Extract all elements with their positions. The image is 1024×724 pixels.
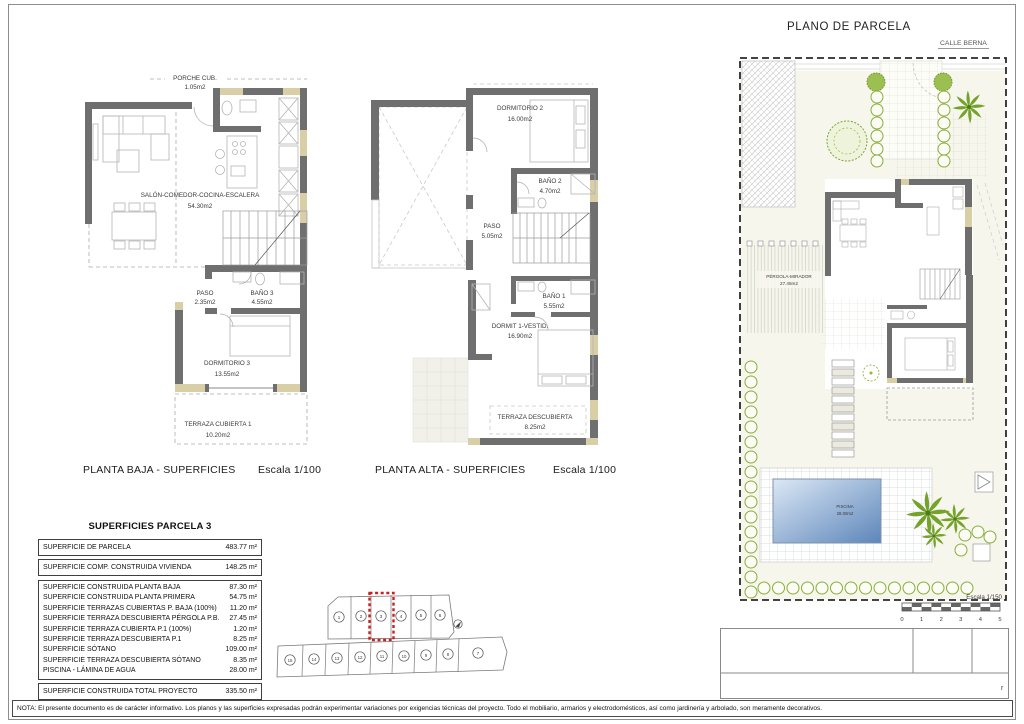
row-value: 28.00 m² — [223, 666, 257, 676]
pa-furniture — [472, 100, 595, 386]
plot-number: 12 — [358, 655, 363, 660]
planta-baja-plan: PORCHE CUB. 1.05m2 SALÓN-COMEDOR-COCINA-… — [55, 58, 350, 458]
room-label-porche: PORCHE CUB. — [173, 75, 217, 82]
scale-bar-cells — [902, 603, 1000, 611]
table-row: SUPERFICIE CONSTRUIDA PLANTA BAJA87.30 m… — [43, 583, 257, 593]
table-row: SUPERFICIE TERRAZA DESCUBIERTA P.18.25 m… — [43, 635, 257, 645]
pergola-area: 27.45m2 — [780, 281, 798, 286]
plot-number: 13 — [335, 656, 340, 661]
table-row: SUPERFICIE SÓTANO109.00 m² — [43, 645, 257, 655]
table-row: SUPERFICIE CONSTRUIDA PLANTA PRIMERA54.7… — [43, 593, 257, 603]
table-row: SUPERFICIE TERRAZAS CUBIERTAS P. BAJA (1… — [43, 604, 257, 614]
scale-tick-1: 1 — [920, 617, 923, 623]
room-area-terraza-desc: 8.25m2 — [524, 424, 546, 431]
row-label: PISCINA - LÁMINA DE AGUA — [43, 666, 136, 676]
scale-planta-alta: Escala 1/100 — [553, 464, 616, 476]
scale-tick-0: 0 — [900, 617, 903, 623]
hatch-fill — [742, 61, 795, 207]
row-value: 148.25 m² — [219, 562, 257, 573]
scale-bar: Escala 1/150 0 1 2 3 4 5 — [896, 590, 1014, 628]
plot-number: 4 — [400, 614, 403, 620]
row-value: 54.75 m² — [223, 593, 257, 603]
row-value: 1.20 m² — [227, 625, 257, 635]
pb-stairs — [223, 211, 307, 265]
plot-number: 2 — [360, 614, 363, 620]
plot-number: 3 — [380, 614, 383, 620]
round-bush — [827, 121, 867, 161]
row-label: SUPERFICIE DE PARCELA — [43, 542, 131, 553]
surfaces-table-title: SUPERFICIES PARCELA 3 — [38, 521, 262, 532]
row-value: 11.20 m² — [224, 604, 257, 614]
sheet: PLANO DE PARCELA CALLE BERNA — [0, 0, 1024, 724]
room-area-bano3: 4.55m2 — [251, 299, 273, 306]
footer-note: NOTA: El presente documento es de caráct… — [12, 700, 1013, 717]
row-label: SUPERFICIE CONSTRUIDA TOTAL PROYECTO — [43, 686, 197, 697]
title-block-frame — [721, 629, 1009, 699]
row-label: SUPERFICIE COMP. CONSTRUIDA VIVIENDA — [43, 562, 191, 573]
pergola-posts — [747, 241, 818, 246]
room-label-dormitorio3: DORMITORIO 3 — [204, 360, 251, 367]
table-box-vivienda: SUPERFICIE COMP. CONSTRUIDA VIVIENDA 148… — [38, 559, 262, 576]
caption-planta-baja-label: PLANTA BAJA - SUPERFICIES — [83, 464, 235, 476]
room-area-porche: 1.05m2 — [184, 84, 206, 91]
porch-tiles — [895, 113, 961, 179]
plot-number: 5 — [420, 613, 423, 619]
table-row: PISCINA - LÁMINA DE AGUA28.00 m² — [43, 666, 257, 676]
room-area-salon: 54.30m2 — [188, 203, 213, 210]
room-area-dormitorio2: 16.00m2 — [508, 116, 533, 123]
room-area-terraza1: 10.20m2 — [206, 432, 231, 439]
room-label-paso: PASO — [196, 290, 213, 297]
room-label-bano3: BAÑO 3 — [250, 288, 274, 297]
row-value: 27.45 m² — [223, 614, 257, 624]
pb-furniture — [93, 98, 304, 356]
row-label: SUPERFICIE TERRAZA DESCUBIERTA P.1 — [43, 635, 181, 645]
scale-tick-4: 4 — [979, 617, 983, 623]
scale-bar-label: Escala 1/150 — [966, 594, 1002, 601]
pergola-label: PÉRGOLA-MIRADOR — [766, 273, 812, 279]
room-label-dormitorio2: DORMITORIO 2 — [497, 105, 544, 112]
scale-planta-baja: Escala 1/100 — [258, 464, 321, 476]
pa-void — [379, 84, 593, 434]
table-box-parcela: SUPERFICIE DE PARCELA 483.77 m² — [38, 539, 262, 556]
scale-planta-alta-label: Escala 1/100 — [553, 464, 616, 476]
surfaces-table: SUPERFICIES PARCELA 3 SUPERFICIE DE PARC… — [38, 521, 262, 703]
plot-number: 6 — [439, 613, 442, 619]
plot-number: 11 — [380, 654, 385, 659]
room-label-salon: SALÓN-COMEDOR-COCINA-ESCALERA — [141, 190, 260, 199]
caption-planta-alta-label: PLANTA ALTA - SUPERFICIES — [375, 464, 525, 476]
row-label: SUPERFICIE TERRAZAS CUBIERTAS P. BAJA (1… — [43, 604, 217, 614]
room-label-paso-alta: PASO — [483, 223, 500, 230]
table-row: SUPERFICIE TERRAZA DESCUBIERTA SÓTANO8.3… — [43, 656, 257, 666]
row-label: SUPERFICIE TERRAZA CUBIERTA P.1 (100%) — [43, 625, 191, 635]
room-label-bano1: BAÑO 1 — [542, 291, 566, 300]
scale-tick-3: 3 — [959, 617, 962, 623]
row-value: 8.35 m² — [227, 656, 257, 666]
room-label-bano2: BAÑO 2 — [538, 176, 562, 185]
caption-planta-alta: PLANTA ALTA - SUPERFICIES — [375, 464, 525, 476]
parcel-map: 1 2 3 4 5 6 15 14 13 12 11 10 9 8 7 — [270, 584, 520, 709]
page-title: PLANO DE PARCELA — [787, 21, 911, 33]
row-value: 335.50 m² — [219, 686, 257, 697]
plot-number: 1 — [338, 615, 341, 621]
plot-number: 15 — [288, 658, 293, 663]
gate-marker — [975, 472, 993, 492]
pa-thin-walls — [372, 200, 466, 268]
room-label-terraza1: TERRAZA CUBIERTA 1 — [185, 421, 252, 428]
table-row: SUPERFICIE TERRAZA CUBIERTA P.1 (100%)1.… — [43, 625, 257, 635]
scale-tick-2: 2 — [940, 617, 943, 623]
room-area-dormitorio3: 13.55m2 — [215, 371, 240, 378]
table-row: SUPERFICIE DE PARCELA 483.77 m² — [43, 542, 257, 553]
room-area-paso-alta: 5.05m2 — [481, 233, 503, 240]
pool-label: PISCINA — [836, 504, 853, 509]
table-row: SUPERFICIE TERRAZA DESCUBIERTA PÉRGOLA P… — [43, 614, 257, 624]
north-arrow-icon — [454, 620, 462, 628]
house-stairs — [920, 269, 960, 299]
row-label: SUPERFICIE TERRAZA DESCUBIERTA PÉRGOLA P… — [43, 614, 219, 624]
room-area-bano1: 5.55m2 — [543, 303, 565, 310]
street-label: CALLE BERNA — [938, 40, 989, 49]
row-value: 87.30 m² — [223, 583, 257, 593]
pool-area: 28.00m2 — [837, 511, 854, 516]
row-label: SUPERFICIE CONSTRUIDA PLANTA PRIMERA — [43, 593, 195, 603]
pergola-deck — [745, 245, 825, 333]
table-row: SUPERFICIE COMP. CONSTRUIDA VIVIENDA 148… — [43, 562, 257, 573]
scale-planta-baja-label: Escala 1/100 — [258, 464, 321, 476]
table-row-total: SUPERFICIE CONSTRUIDA TOTAL PROYECTO 335… — [43, 686, 257, 697]
row-value: 109.00 m² — [219, 645, 257, 655]
room-label-dormit1: DORMIT 1-VESTID. — [492, 323, 549, 330]
row-label: SUPERFICIE TERRAZA DESCUBIERTA SÓTANO — [43, 656, 201, 666]
title-block: r — [720, 628, 1009, 699]
room-label-terraza-desc: TERRAZA DESCUBIERTA — [498, 414, 574, 421]
room-area-paso: 2.35m2 — [194, 299, 216, 306]
garden-steps — [832, 360, 854, 457]
caption-planta-baja: PLANTA BAJA - SUPERFICIES — [83, 464, 235, 476]
room-area-bano2: 4.70m2 — [539, 188, 561, 195]
pa-stairs — [513, 213, 590, 263]
plot-number: 14 — [312, 657, 317, 662]
row-label: SUPERFICIE CONSTRUIDA PLANTA BAJA — [43, 583, 181, 593]
room-area-dormit1: 16.90m2 — [508, 333, 533, 340]
plot-number: 10 — [402, 654, 407, 659]
table-box-total: SUPERFICIE CONSTRUIDA TOTAL PROYECTO 335… — [38, 683, 262, 700]
table-box-detail: SUPERFICIE CONSTRUIDA PLANTA BAJA87.30 m… — [38, 580, 262, 680]
pool — [773, 479, 881, 543]
parcela-plan: PÉRGOLA-MIRADOR 27.45m2 — [737, 55, 1010, 603]
scale-tick-5: 5 — [998, 617, 1001, 623]
planta-alta-plan: DORMITORIO 2 16.00m2 BAÑO 2 4.70m2 PASO … — [368, 80, 623, 458]
row-value: 483.77 m² — [219, 542, 257, 553]
row-label: SUPERFICIE SÓTANO — [43, 645, 116, 655]
pa-walls — [371, 88, 598, 445]
house-side-tiles — [821, 299, 885, 349]
row-value: 8.25 m² — [227, 635, 257, 645]
